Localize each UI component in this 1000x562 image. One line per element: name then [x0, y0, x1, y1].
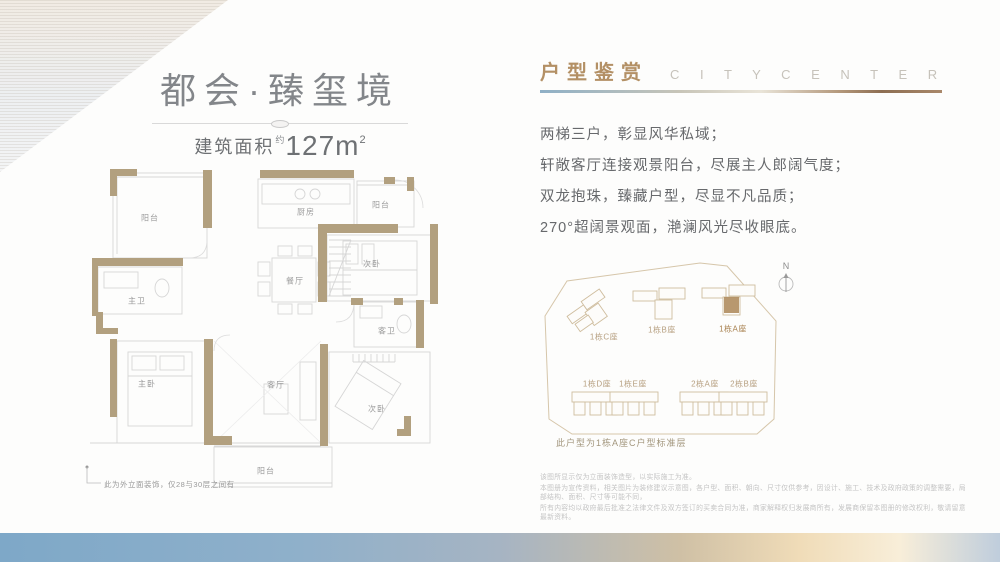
disclaimer-block: 该图所显示仅为立面装饰造型，以实际施工为准。 本图册为宣传资料，相关图片为装修建… [540, 473, 972, 524]
room-label-balcony-topleft: 阳台 [141, 213, 159, 224]
room-label-balcony-topright: 阳台 [372, 200, 390, 211]
building-label-1B: 1栋B座 [648, 325, 676, 336]
description-line-3: 双龙抱珠，臻藏户型，尽显不凡品质； [540, 182, 960, 213]
area-unit: m [335, 130, 359, 161]
building-label-1C: 1栋C座 [590, 332, 618, 343]
description-block: 两梯三户，彰显风华私域； 轩敞客厅连接观景阳台，尽展主人郎阔气度； 双龙抱珠，臻… [540, 120, 960, 244]
floorplan-footnote: 此为外立面装饰，仅28与30层之间有 [104, 479, 235, 490]
area-exponent: 2 [359, 134, 365, 146]
north-label: N [783, 261, 790, 271]
room-label-bedroom-upper: 次卧 [363, 259, 381, 270]
building-label-1D: 1栋D座 [583, 379, 611, 390]
description-line-1: 两梯三户，彰显风华私域； [540, 120, 960, 151]
compass-icon [779, 273, 793, 292]
disclaimer-line-1: 该图所显示仅为立面装饰造型，以实际施工为准。 [540, 473, 972, 482]
title-divider [152, 123, 408, 124]
building-label-2B: 2栋B座 [730, 379, 758, 390]
room-label-balcony-bottom: 阳台 [257, 466, 275, 477]
divider-oval-ornament [271, 120, 289, 128]
section-title-cn: 户型鉴赏 [540, 62, 648, 84]
section-title: 户型鉴赏C I T Y C E N T E R [540, 56, 946, 85]
disclaimer-line-3: 所有内容均以政府最后批准之法律文件及双方签订的买卖合同为准，商家解释权归发展商所… [540, 504, 972, 522]
room-label-kitchen: 厨房 [297, 207, 315, 218]
description-line-4: 270°超阔景观面，滟澜风光尽收眼底。 [540, 213, 960, 244]
section-gradient-rule [540, 90, 942, 93]
highlighted-unit [724, 297, 739, 313]
description-line-2: 轩敞客厅连接观景阳台，尽展主人郎阔气度； [540, 151, 960, 182]
room-label-master-bedroom: 主卧 [138, 379, 156, 390]
brochure-page: 都会·臻玺境 建筑面积约127m2 [0, 0, 1000, 562]
area-label: 建筑面积 [194, 137, 274, 157]
room-label-dining: 餐厅 [286, 276, 304, 287]
room-label-bedroom-lower: 次卧 [368, 404, 386, 415]
room-label-guest-bath: 客卫 [378, 326, 396, 337]
building-label-1E: 1栋E座 [619, 379, 647, 390]
building-label-1A: 1栋A座 [719, 324, 747, 335]
building-label-2A: 2栋A座 [691, 379, 719, 390]
building-area-line: 建筑面积约127m2 [120, 130, 440, 162]
project-title: 都会·臻玺境 [120, 62, 440, 114]
area-approx-mark: 约 [275, 135, 284, 145]
area-value: 127 [285, 130, 335, 161]
siteplan-drawing [535, 255, 795, 445]
room-label-living-room: 客厅 [267, 380, 285, 391]
siteplan-caption: 此户型为1栋A座C户型标准层 [556, 436, 687, 449]
room-label-master-bath: 主卫 [128, 296, 146, 307]
bottom-gradient-band [0, 533, 1000, 562]
section-title-en: C I T Y C E N T E R [670, 67, 946, 82]
disclaimer-line-2: 本图册为宣传资料，相关图片为装修建议示意图，各户型、面积、朝向、尺寸仅供参考，因… [540, 484, 972, 502]
